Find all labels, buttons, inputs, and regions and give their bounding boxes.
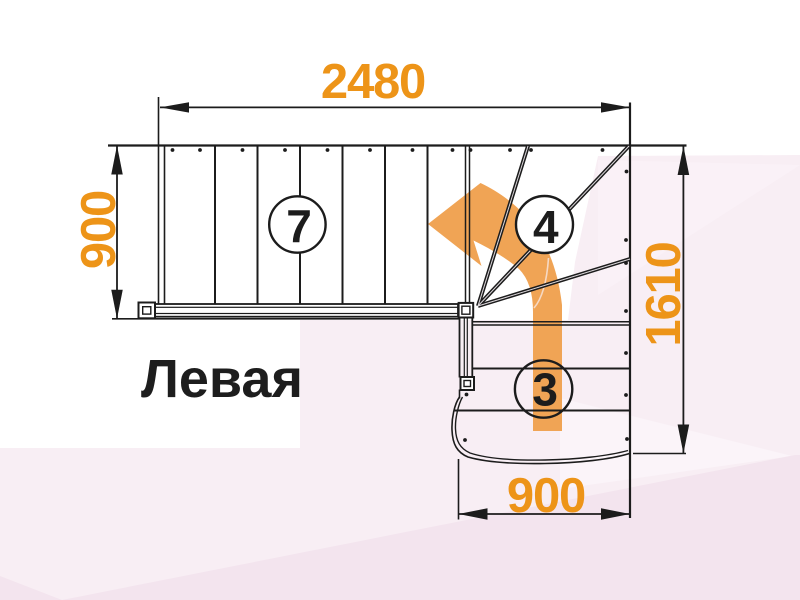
svg-text:900: 900 bbox=[72, 191, 126, 269]
svg-text:3: 3 bbox=[532, 364, 558, 416]
svg-text:1610: 1610 bbox=[637, 242, 691, 346]
svg-text:7: 7 bbox=[286, 200, 312, 252]
svg-text:Левая: Левая bbox=[141, 349, 303, 409]
svg-text:900: 900 bbox=[507, 469, 585, 523]
svg-text:2480: 2480 bbox=[321, 55, 425, 109]
svg-text:4: 4 bbox=[533, 201, 559, 253]
